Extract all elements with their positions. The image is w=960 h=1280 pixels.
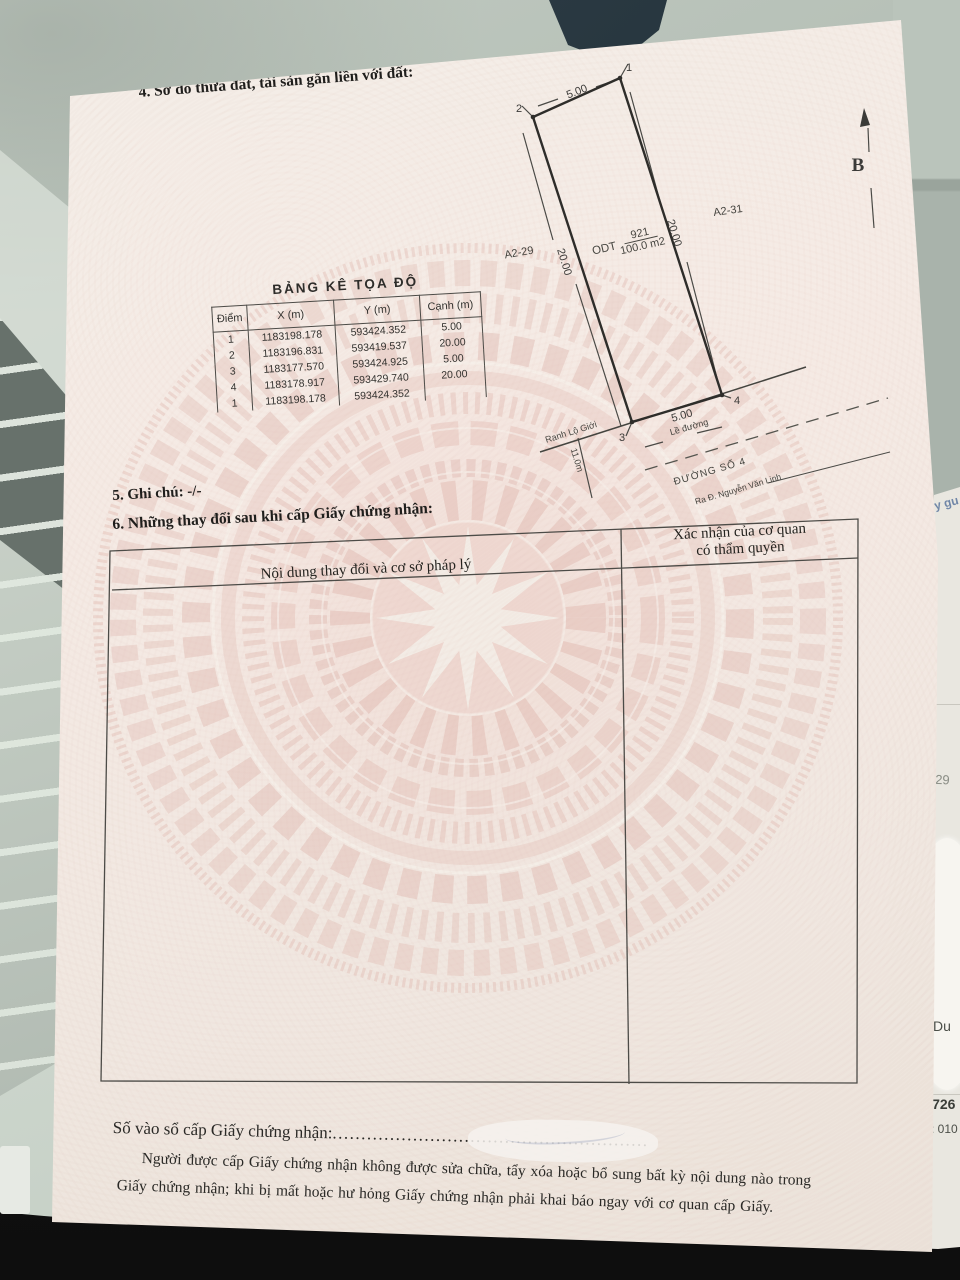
card-text-fragment: Du: [933, 1018, 951, 1034]
corner-label-4: 4: [734, 395, 740, 407]
photo-of-land-certificate: y gu 929 Du D726 T: 010: [0, 0, 960, 1280]
cell-point: 1: [217, 395, 252, 413]
corner-label-1: 1: [626, 62, 632, 74]
diagram-linework: [0, 0, 960, 1280]
col-header-edge: Cạnh (m): [419, 292, 482, 320]
change-table-col2-header: Xác nhận của cơ quan có thẩm quyền: [673, 521, 807, 561]
col-header-point: Điểm: [212, 305, 248, 332]
card-text-fragment: y gu: [933, 493, 960, 513]
certificate-page: 4. Sơ đồ thửa đất, tài sản gắn liền với …: [0, 0, 960, 1280]
parcel-code: ODT: [591, 240, 617, 257]
cell-point: 1: [213, 330, 248, 348]
background-white-patch: [0, 1146, 30, 1214]
registry-label: Số vào sổ cấp Giấy chứng nhận:: [113, 1118, 333, 1142]
corner-label-2: 2: [516, 103, 522, 115]
corner-label-3: 3: [619, 432, 625, 444]
coordinate-table: BẢNG KÊ TỌA ĐỘ Điểm X (m) Y (m) Cạnh (m)…: [206, 270, 491, 413]
north-symbol: B: [852, 155, 865, 177]
